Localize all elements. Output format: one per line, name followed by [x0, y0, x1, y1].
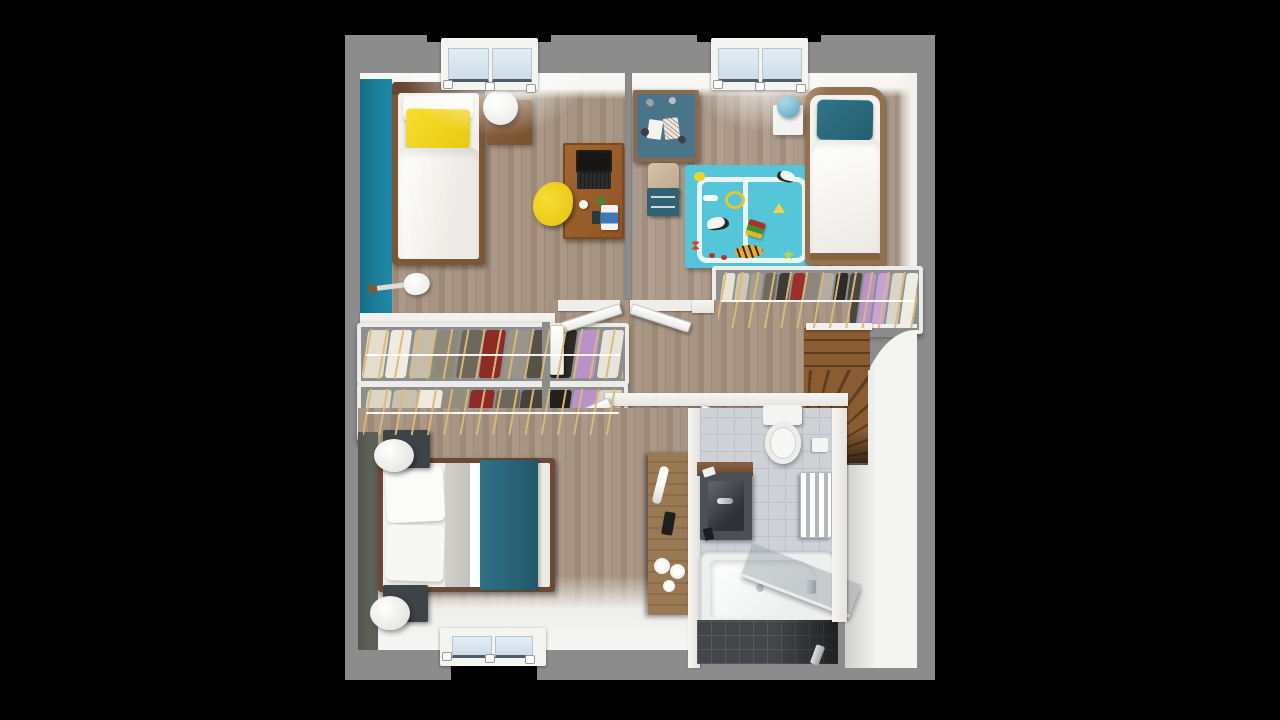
heart-decoration: [645, 97, 656, 108]
hanging-garment: [857, 273, 877, 327]
bedrooms-divider-wall: [625, 73, 632, 300]
bathroom-east-wall: [832, 408, 847, 622]
laptop-screen: [576, 150, 612, 173]
floor-plan-render: [0, 0, 1280, 720]
vanity-basin: [700, 472, 752, 540]
window-pane: [492, 48, 532, 82]
hanging-garment: [490, 390, 520, 434]
window-handle: [796, 84, 806, 93]
toy-ladybug: [709, 253, 715, 258]
hanging-garment: [516, 390, 546, 434]
black-comb-item: [661, 511, 676, 536]
hanging-garment: [593, 390, 623, 434]
bedroom3-gray-blanket: [445, 463, 473, 587]
bedroom3-pillow-top: [385, 466, 446, 524]
hanging-garment: [568, 390, 598, 434]
desk-mug: [579, 200, 588, 209]
guitar-head: [368, 284, 378, 294]
toy-bone: [703, 195, 718, 201]
hanging-garment: [716, 273, 736, 327]
dressing-rack-bottom: [357, 383, 628, 441]
window-handle: [442, 652, 452, 661]
guitar-body: [403, 271, 431, 296]
hanging-garment: [455, 330, 483, 378]
basin-faucet: [717, 498, 733, 504]
hanging-garment: [829, 273, 849, 327]
window-handle: [526, 84, 536, 93]
hanging-garment: [573, 330, 601, 378]
towel-radiator: [800, 472, 832, 538]
towel-roll: [663, 580, 675, 592]
hanging-garment: [843, 273, 863, 327]
kids-blue-lamp: [777, 95, 800, 118]
window-handle: [525, 655, 535, 664]
hanging-garment: [409, 330, 437, 378]
hanging-garment: [815, 273, 835, 327]
hanging-garment: [885, 273, 905, 327]
drawer-slot: [651, 206, 675, 208]
hanging-garment: [362, 330, 390, 378]
stairs-straight-flight: [804, 328, 870, 370]
hanging-garment: [542, 390, 572, 434]
hanging-garment: [465, 390, 495, 434]
window-bay-shadow: [451, 664, 537, 692]
hanging-garment: [787, 273, 807, 327]
window-pane: [762, 48, 802, 82]
bed-duvet: [398, 148, 479, 258]
hanging-garment: [758, 273, 778, 327]
dressing-rack-top: [357, 323, 629, 385]
toilet-bowl: [765, 422, 801, 464]
floor-plan: [345, 35, 935, 680]
hanging-garment: [773, 273, 793, 327]
heart-decoration: [668, 96, 678, 106]
window-pane: [718, 48, 759, 82]
razor-item: [652, 465, 670, 504]
hanging-garment: [479, 330, 507, 378]
hanging-garment: [899, 273, 919, 327]
kids-teal-pillow: [817, 100, 874, 141]
bedroom3-teal-runner: [480, 460, 538, 590]
dressing-rack-bottom-clothes: [364, 390, 621, 434]
towel-roll: [670, 564, 685, 579]
window-pane: [448, 48, 489, 82]
hanging-garment: [549, 330, 577, 378]
bedroom3-window: [440, 628, 546, 666]
hanging-garment: [432, 330, 460, 378]
toy-ring: [725, 191, 745, 209]
toy-duck: [694, 172, 705, 181]
bedroom3-bed: [378, 458, 555, 592]
hanging-garment: [730, 273, 750, 327]
bedroom1-desk: [563, 143, 624, 239]
towel-roll: [654, 558, 670, 574]
window-handle: [713, 80, 723, 89]
desk-book: [601, 205, 618, 230]
hanging-garment: [388, 390, 418, 434]
bedroom3-console: [648, 452, 692, 615]
toilet-roll-holder: [812, 438, 828, 452]
kids-bed-footboard: [810, 253, 880, 260]
heart-decoration: [677, 134, 688, 145]
bedroom1-round-lamp: [483, 90, 518, 125]
drawer-slot: [651, 196, 675, 198]
kids-closet-clothes: [719, 273, 916, 327]
bedroom1-bed: [392, 82, 485, 265]
hanging-garment: [439, 390, 469, 434]
basin-inner: [708, 481, 744, 531]
bedroom3-pillow-bottom: [385, 524, 445, 582]
bedroom1-window: [441, 38, 538, 90]
kids-bed-duvet: [810, 140, 880, 255]
hanging-garment: [385, 330, 413, 378]
kids-room-window: [711, 38, 808, 90]
window-handle: [485, 82, 495, 91]
hanging-garment: [596, 330, 624, 378]
window-handle: [755, 82, 765, 91]
laptop: [576, 150, 612, 190]
hall-wall-chunk: [692, 300, 714, 313]
yellow-pillow: [406, 108, 471, 148]
hanging-garment: [801, 273, 821, 327]
bedroom3-lamp-bottom: [370, 596, 410, 630]
hallway-south-wall: [605, 393, 848, 406]
bedroom3-lamp-top: [374, 439, 414, 472]
desk-apple: [597, 197, 605, 205]
bathtub-drain: [756, 584, 764, 592]
hanging-garment: [362, 390, 392, 434]
hanging-garment: [744, 273, 764, 327]
hanging-garment: [502, 330, 530, 378]
toy-ladybug: [721, 255, 727, 260]
window-handle: [485, 654, 495, 663]
kids-chair-drawers: [647, 188, 679, 216]
hanging-garment: [871, 273, 891, 327]
dressing-rack-top-clothes: [364, 330, 622, 378]
desk-phone: [592, 211, 600, 224]
kids-desk-paper-white: [647, 119, 664, 140]
hanging-garment: [413, 390, 443, 434]
kids-bed: [805, 87, 885, 265]
kids-closet-rack: [712, 266, 923, 334]
laptop-keyboard: [577, 173, 611, 189]
window-handle: [443, 80, 453, 89]
rug-road-path-branch: [743, 179, 748, 251]
kids-desk: [633, 90, 699, 162]
hanging-garment: [526, 330, 554, 378]
kids-play-rug: [685, 165, 815, 268]
